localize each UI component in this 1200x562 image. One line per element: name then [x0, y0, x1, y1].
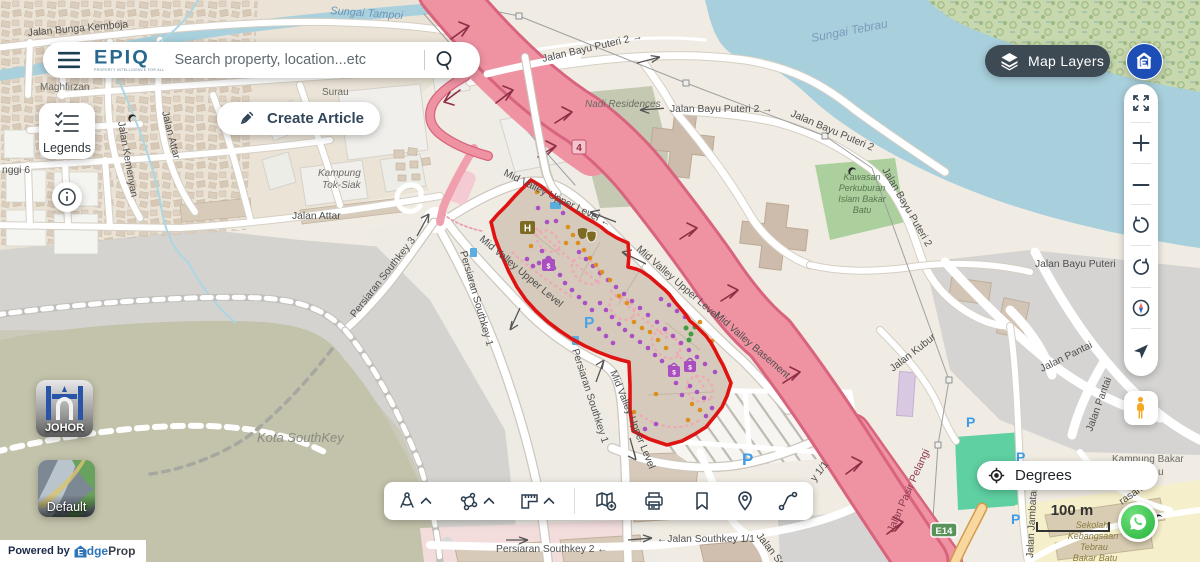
svg-text:Maghfirzan: Maghfirzan	[40, 82, 89, 93]
svg-text:P: P	[966, 414, 975, 430]
svg-text:Kampung: Kampung	[318, 168, 361, 179]
svg-text:Bakar Batu: Bakar Batu	[1073, 553, 1118, 562]
svg-text:Islam Bakar: Islam Bakar	[838, 194, 887, 204]
svg-text:Jalan Bayu Puteri: Jalan Bayu Puteri	[1035, 259, 1116, 270]
svg-text:nggi 6: nggi 6	[2, 165, 30, 176]
svg-text:Perkuburan: Perkuburan	[839, 183, 886, 193]
svg-text:←Jalan Southkey 1/1: ←Jalan Southkey 1/1	[657, 534, 755, 545]
svg-text:Tebrau: Tebrau	[1080, 542, 1108, 552]
svg-text:Nadi Residences: Nadi Residences	[585, 99, 661, 110]
svg-text:Batu: Batu	[853, 205, 872, 215]
svg-text:P: P	[584, 315, 594, 332]
svg-text:$: $	[688, 365, 692, 372]
svg-text:H: H	[524, 224, 531, 235]
svg-text:u: u	[1158, 467, 1164, 478]
svg-text:P: P	[1011, 511, 1020, 527]
svg-text:Surau: Surau	[322, 87, 349, 98]
svg-text:Persiaran Southkey 2 ←: Persiaran Southkey 2 ←	[496, 544, 608, 555]
svg-text:E14: E14	[936, 526, 954, 537]
svg-text:$: $	[547, 264, 551, 271]
svg-text:Jalan Attar: Jalan Attar	[292, 211, 341, 222]
svg-text:Tok-Siak: Tok-Siak	[322, 180, 362, 191]
svg-text:P: P	[742, 450, 753, 469]
svg-text:4: 4	[576, 143, 582, 154]
svg-text:$: $	[672, 370, 676, 377]
svg-text:Kota SouthKey: Kota SouthKey	[257, 430, 345, 445]
svg-text:E: E	[77, 547, 83, 557]
svg-text:Jalan Bayu Puteri 2 →: Jalan Bayu Puteri 2 →	[670, 104, 772, 115]
